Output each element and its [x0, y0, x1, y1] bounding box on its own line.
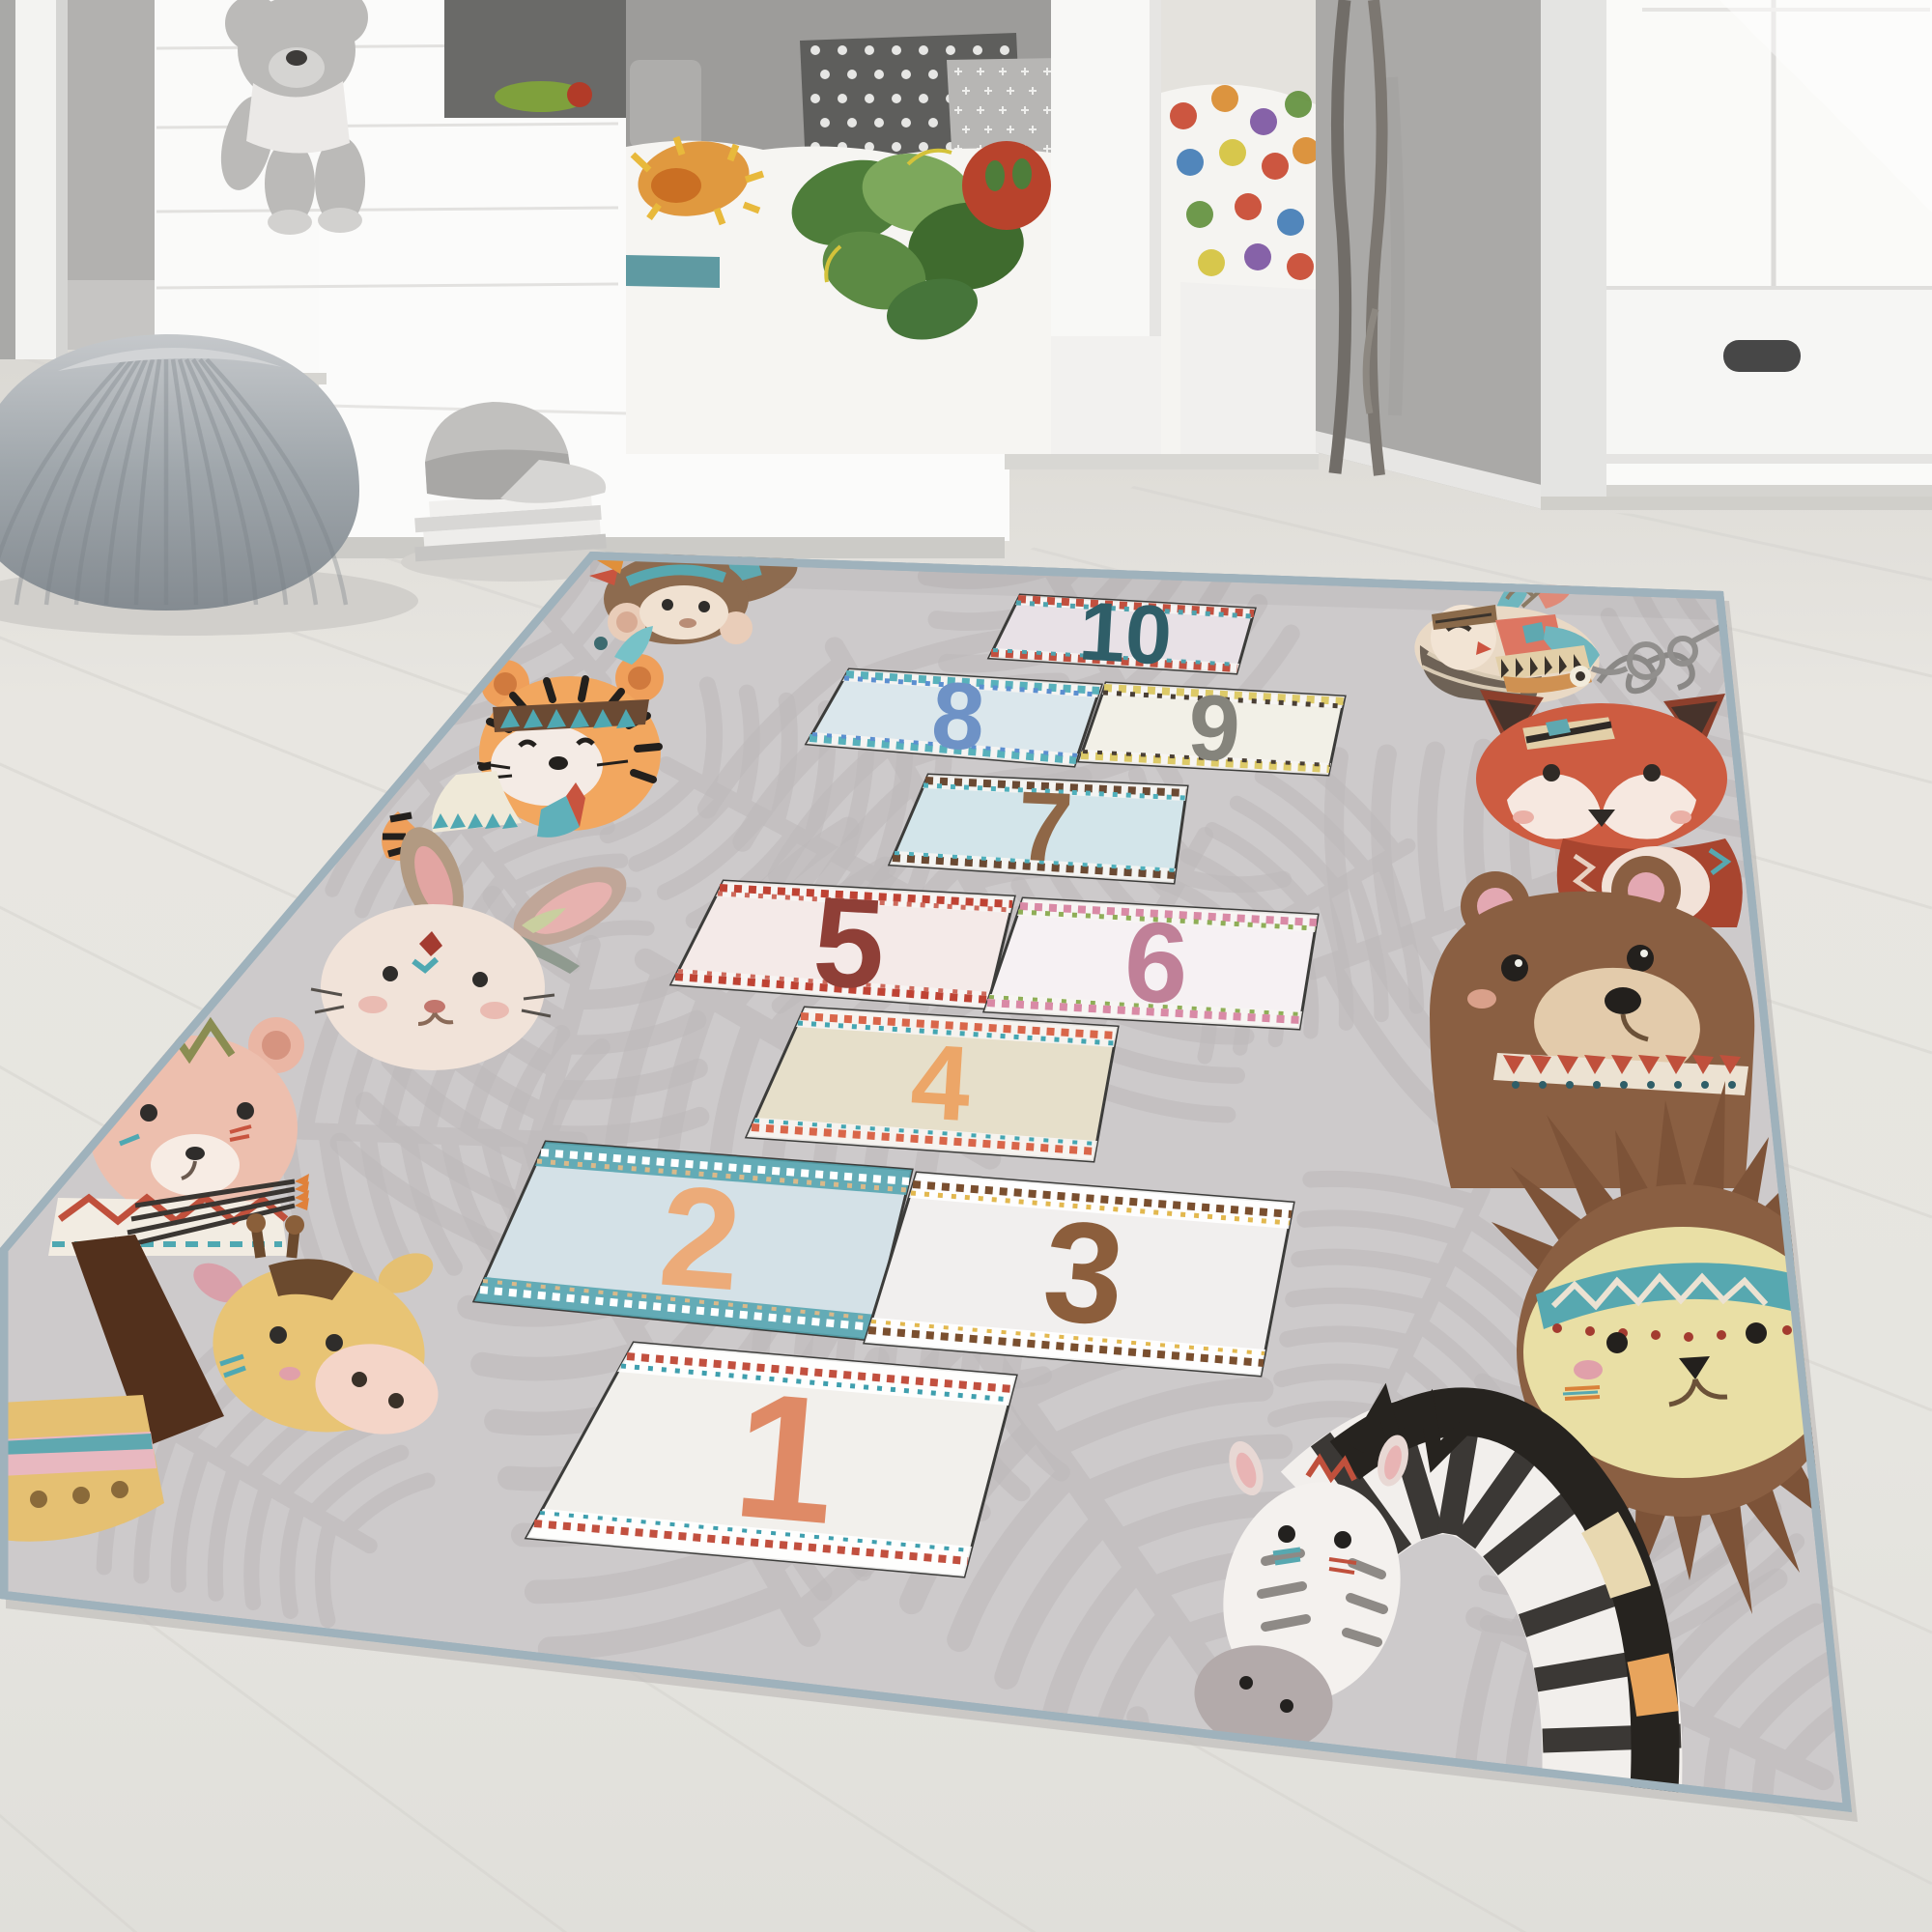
svg-text:8: 8: [928, 661, 987, 770]
svg-text:2: 2: [655, 1156, 747, 1321]
svg-text:1: 1: [727, 1355, 843, 1562]
svg-text:4: 4: [908, 1022, 975, 1145]
svg-text:9: 9: [1185, 675, 1242, 781]
svg-text:5: 5: [810, 870, 888, 1016]
svg-text:7: 7: [1015, 771, 1075, 883]
svg-text:3: 3: [1037, 1191, 1129, 1356]
svg-text:6: 6: [1122, 897, 1192, 1028]
svg-text:10: 10: [1076, 584, 1174, 682]
